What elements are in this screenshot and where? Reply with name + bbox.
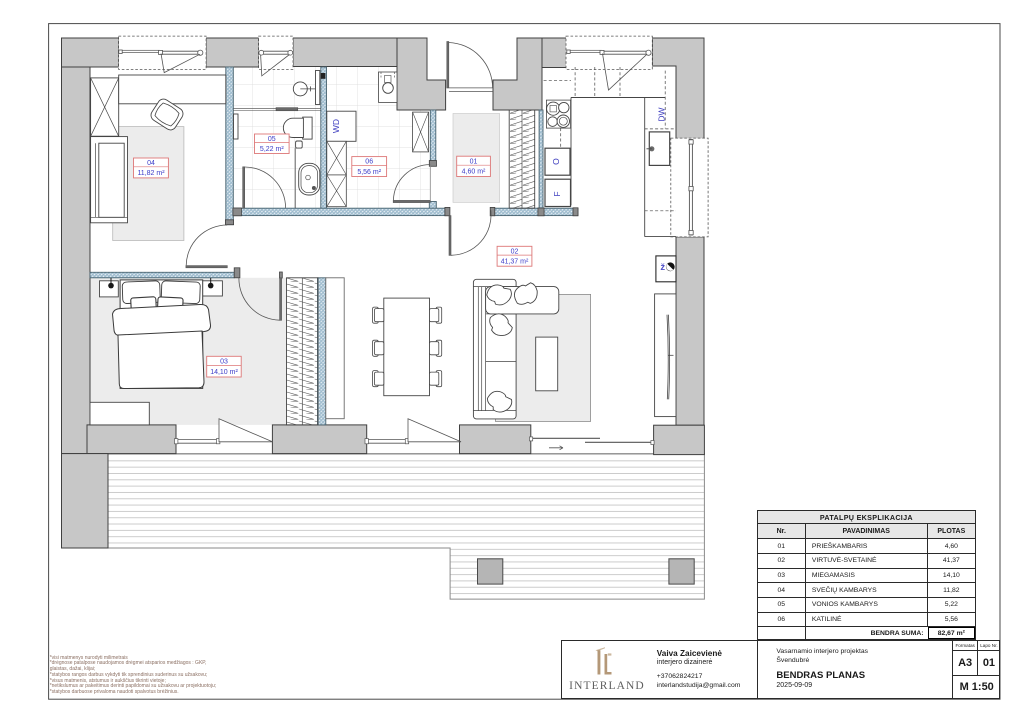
svg-text:INTERLAND: INTERLAND xyxy=(569,680,645,692)
svg-text:06: 06 xyxy=(365,159,373,166)
svg-text:F: F xyxy=(552,191,562,196)
svg-text:05: 05 xyxy=(268,136,276,143)
svg-text:03: 03 xyxy=(220,359,228,366)
svg-text:01: 01 xyxy=(470,158,478,165)
svg-text:41,37 m²: 41,37 m² xyxy=(501,259,529,266)
svg-text:11,82 m²: 11,82 m² xyxy=(137,170,165,177)
svg-text:5,56 m²: 5,56 m² xyxy=(357,169,381,176)
svg-text:DW: DW xyxy=(657,107,667,121)
svg-text:4,60 m²: 4,60 m² xyxy=(462,169,486,176)
svg-text:WD: WD xyxy=(331,119,341,133)
svg-text:04: 04 xyxy=(147,160,155,167)
svg-text:14,10 m²: 14,10 m² xyxy=(210,369,238,376)
svg-text:5,22 m²: 5,22 m² xyxy=(260,146,284,153)
svg-text:O: O xyxy=(551,158,561,165)
svg-text:ž: ž xyxy=(660,262,665,273)
svg-text:02: 02 xyxy=(511,248,519,255)
